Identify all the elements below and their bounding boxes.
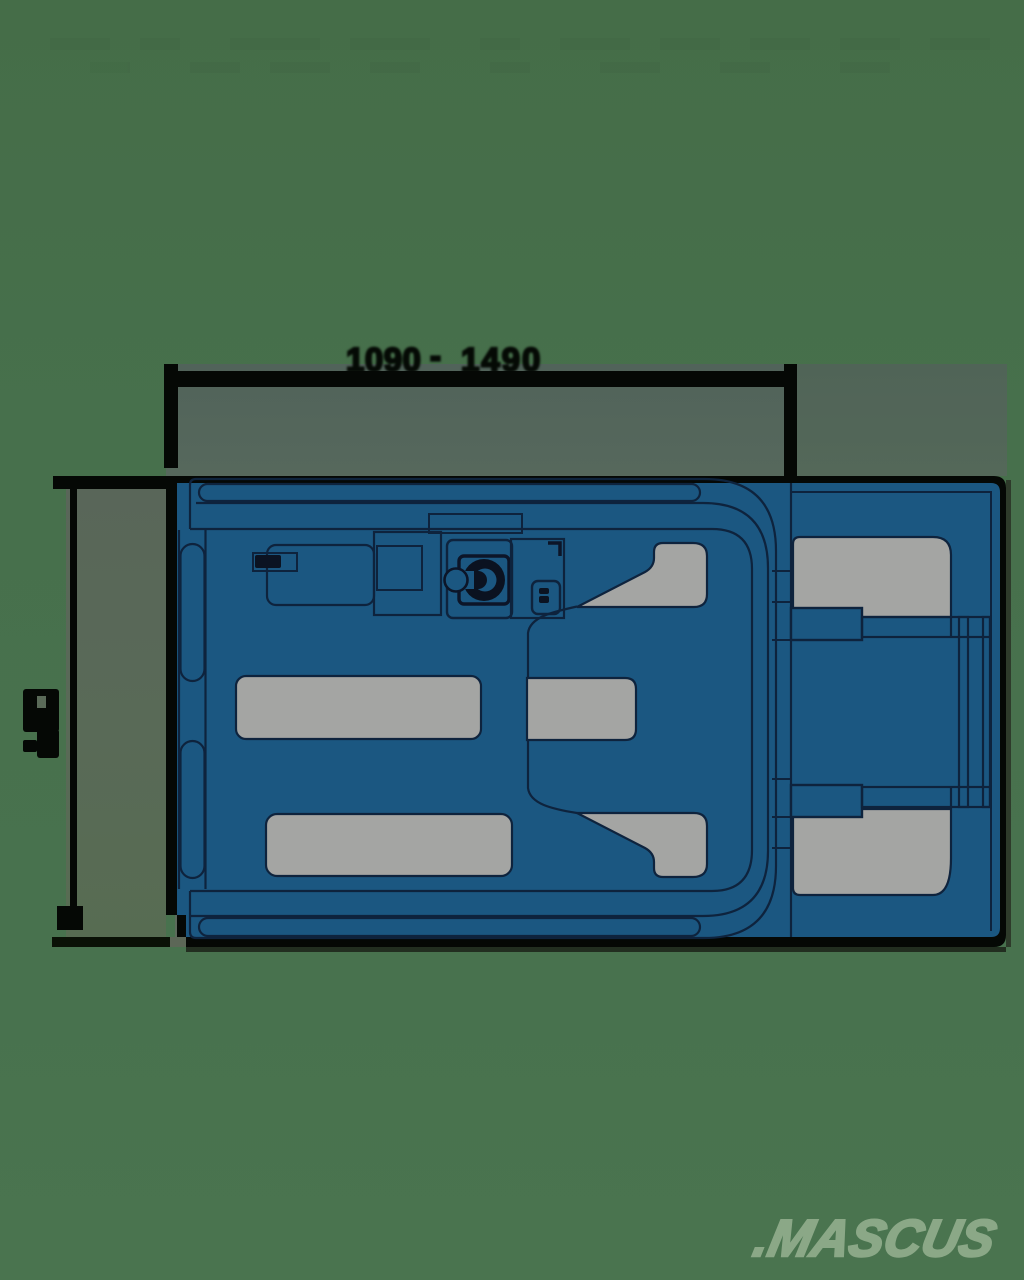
svg-text:.MASCUS: .MASCUS — [749, 1210, 1001, 1268]
svg-text:-: - — [430, 337, 441, 374]
